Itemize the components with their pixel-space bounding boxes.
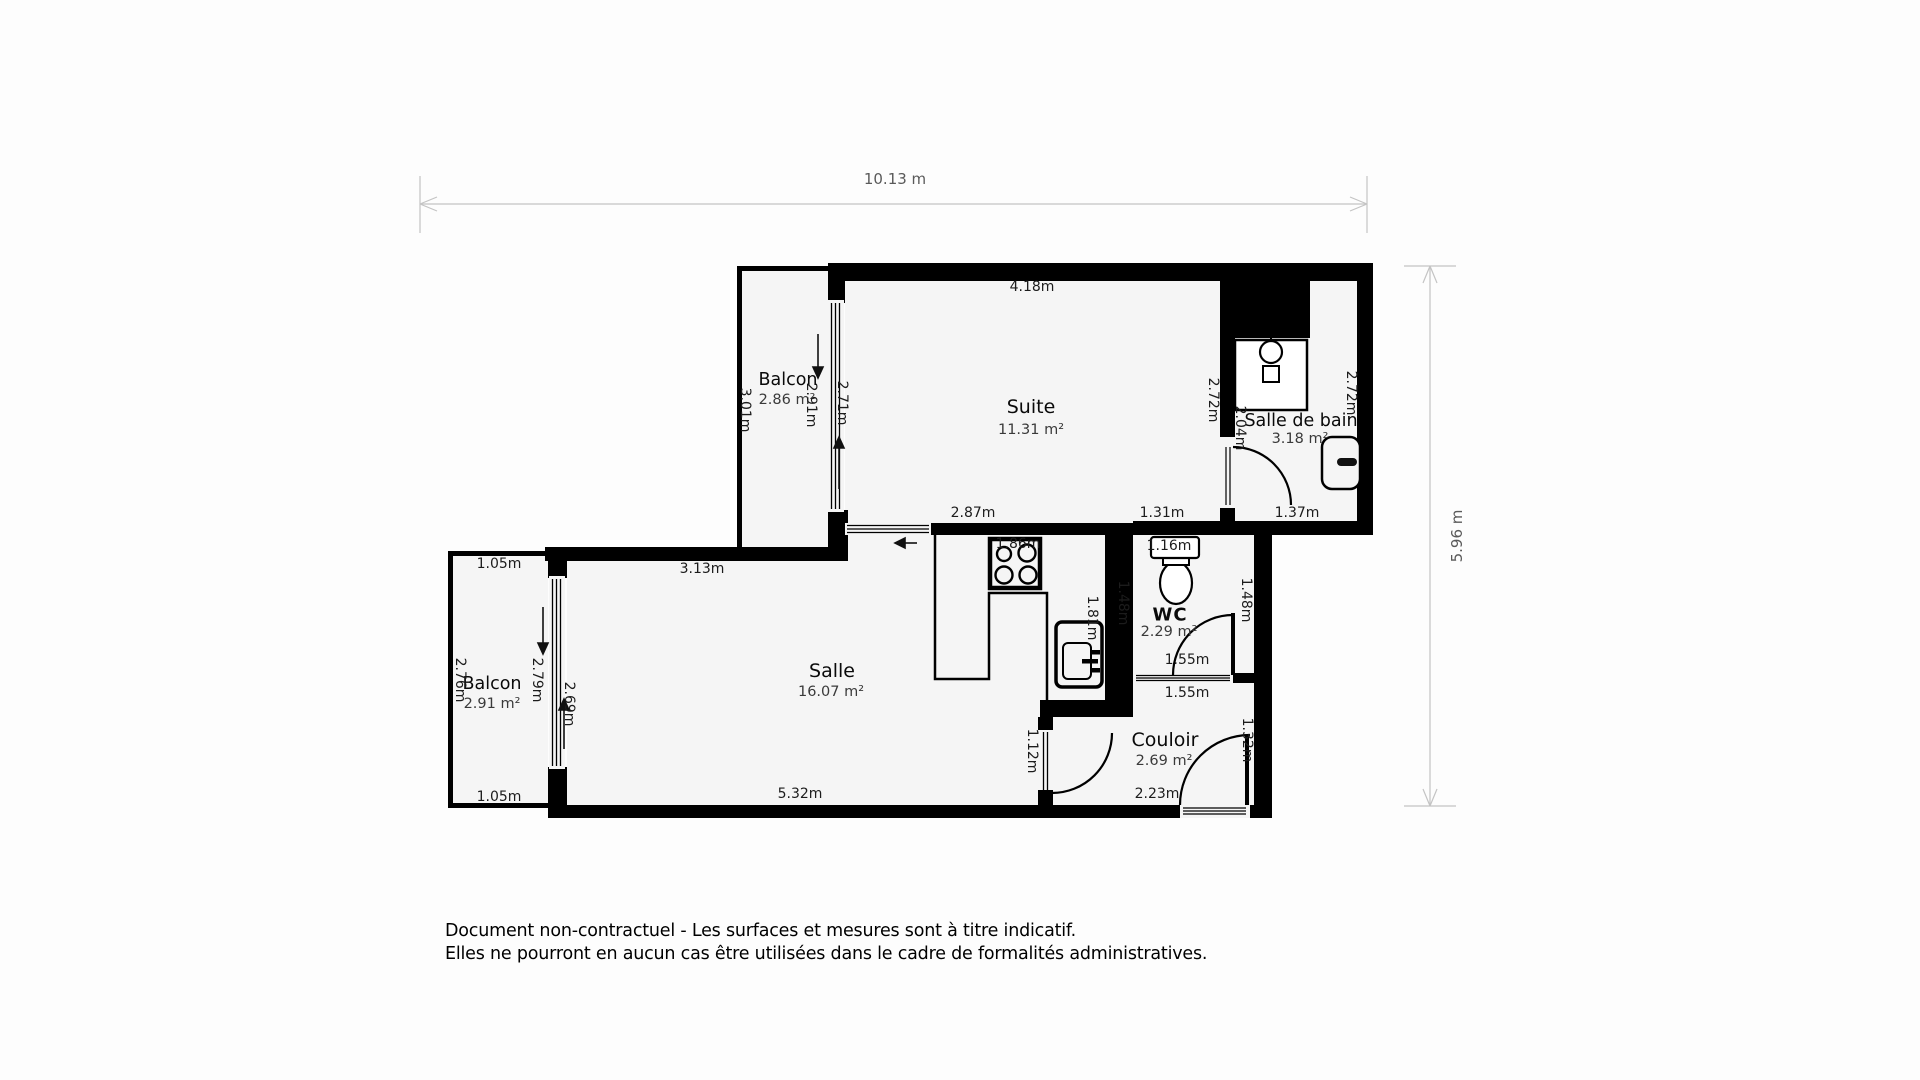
room-salle-upper <box>845 535 1105 561</box>
measure-wc-top: 1.16m <box>1147 538 1192 554</box>
measure-balcon-left-top: 1.05m <box>477 556 522 572</box>
room-area-salle: 16.07 m² <box>798 684 864 700</box>
room-area-wc: 2.29 m² <box>1141 624 1198 640</box>
wc-door-threshold <box>1133 673 1233 683</box>
floor-plan-page: 10.13 m 5.96 m Suite 11.31 m² Salle de b… <box>0 0 1920 1080</box>
measure-kitchen-sink: 1.81m <box>1084 596 1100 641</box>
disclaimer-line-1: Document non-contractuel - Les surfaces … <box>445 920 1207 943</box>
measure-kitchen-width: 1.86m <box>996 536 1041 552</box>
measure-entrance-door: 1.32m <box>1239 718 1255 763</box>
salle-couloir-door-opening <box>1038 730 1053 790</box>
measure-salle-top: 3.13m <box>680 561 725 577</box>
room-label-suite: Suite <box>1007 396 1056 418</box>
measure-balcon-left-bottom: 1.05m <box>477 789 522 805</box>
measure-suite-top: 4.18m <box>1010 279 1055 295</box>
measure-balcon-top-window: 2.91m <box>803 383 819 428</box>
measure-wc-left: 1.48m <box>1115 581 1131 626</box>
room-area-suite: 11.31 m² <box>998 422 1064 438</box>
measure-salle-bottom: 5.32m <box>778 786 823 802</box>
room-label-wc: WC <box>1152 605 1187 626</box>
room-label-balcon-left: Balcon <box>462 674 521 694</box>
room-label-couloir: Couloir <box>1132 729 1199 751</box>
measure-sdb-door: 2.04m <box>1232 406 1248 451</box>
measure-couloir-top: 1.55m <box>1165 685 1210 701</box>
disclaimer-text: Document non-contractuel - Les surfaces … <box>445 920 1207 966</box>
window-suite-salle <box>845 523 931 535</box>
measure-wc-right: 1.48m <box>1238 578 1254 623</box>
room-label-salle-de-bain: Salle de bain <box>1244 411 1357 431</box>
measure-sdb-bottom: 1.37m <box>1275 505 1320 521</box>
measure-suite-right: 2.72m <box>1205 378 1221 423</box>
measure-suite-left: 2.71m <box>834 381 850 426</box>
room-area-balcon-left: 2.91 m² <box>464 696 521 712</box>
measure-sdb-right: 2.72m <box>1343 371 1359 416</box>
disclaimer-line-2: Elles ne pourront en aucun cas être util… <box>445 943 1207 966</box>
room-area-salle-de-bain: 3.18 m² <box>1272 431 1329 447</box>
measure-balcon-left-window: 2.79m <box>529 658 545 703</box>
entrance-threshold <box>1180 805 1250 818</box>
floor-plan-drawing <box>0 0 1920 1080</box>
washbasin-icon <box>1235 334 1307 410</box>
measure-suite-bottom-left: 2.87m <box>951 505 996 521</box>
measure-balcon-left-outer: 2.76m <box>452 658 468 703</box>
total-height-label: 5.96 m <box>1448 510 1466 563</box>
room-label-salle: Salle <box>809 660 855 682</box>
window-balcon-salle <box>549 576 565 769</box>
measure-salle-window: 2.69m <box>561 682 577 727</box>
measure-couloir-bottom: 2.23m <box>1135 786 1180 802</box>
total-width-label: 10.13 m <box>864 170 926 188</box>
measure-balcon-top-left: 3.01m <box>737 388 753 433</box>
measure-salle-couloir-door: 1.12m <box>1024 729 1040 774</box>
duct-block <box>1235 281 1310 338</box>
room-area-couloir: 2.69 m² <box>1136 753 1193 769</box>
measure-suite-bottom-right: 1.31m <box>1140 505 1185 521</box>
measure-wc-bottom: 1.55m <box>1165 652 1210 668</box>
